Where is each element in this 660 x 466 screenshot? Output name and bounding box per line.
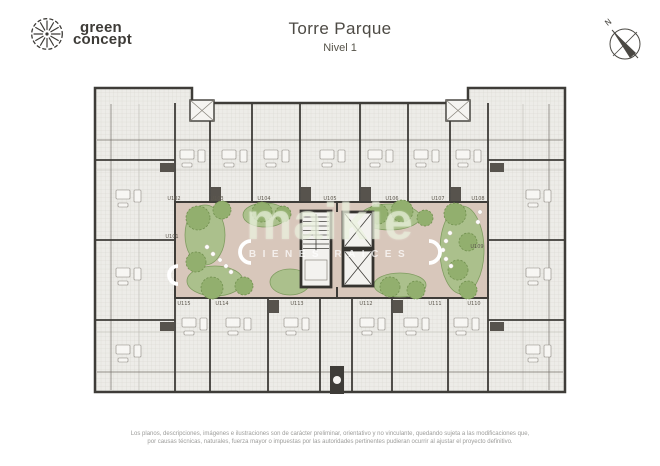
unit-label: U110	[467, 301, 480, 307]
disclaimer: Los planos, descripciones, imágenes e il…	[70, 431, 590, 446]
unit-label: U115	[177, 301, 190, 307]
unit-label: U113	[290, 301, 303, 307]
disclaimer-line1: Los planos, descripciones, imágenes e il…	[70, 431, 590, 439]
disclaimer-line2: por causas técnicas, naturales, fuerza m…	[70, 439, 590, 447]
unit-label: U105	[323, 196, 336, 202]
unit-label: U114	[215, 301, 228, 307]
unit-label: U111	[428, 301, 441, 307]
entrance-stub	[330, 366, 344, 394]
unit-label: U101	[165, 234, 178, 240]
unit-label: U106	[385, 196, 398, 202]
unit-label: U108	[471, 196, 484, 202]
unit-label: U103	[210, 196, 223, 202]
unit-label: U104	[257, 196, 270, 202]
unit-label: U102	[167, 196, 180, 202]
unit-label: U112	[359, 301, 372, 307]
unit-label: U109	[470, 244, 483, 250]
floor-plan: U102 U103 U104 U105 U106 U107 U108 U101 …	[0, 0, 660, 466]
unit-label: U107	[431, 196, 444, 202]
